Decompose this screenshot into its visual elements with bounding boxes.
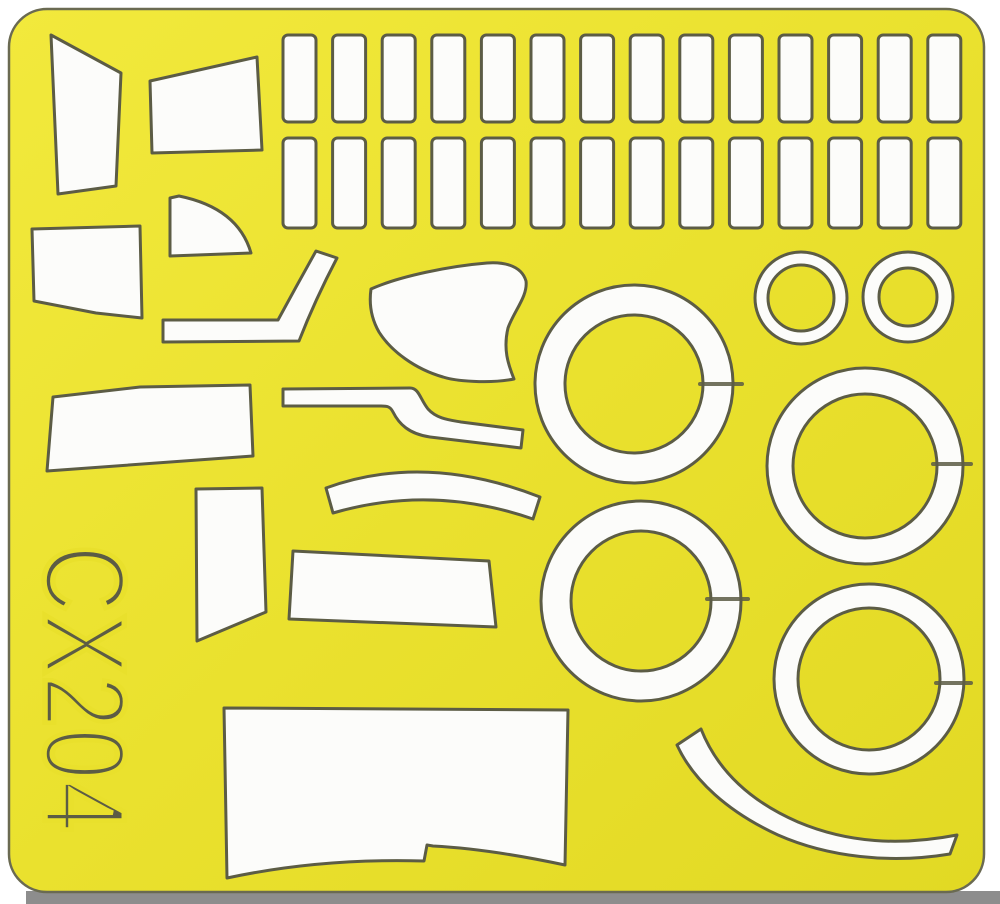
mask-rectangle [531,138,564,228]
mask-rectangle [829,138,862,228]
mask-rectangle [481,138,514,228]
mask-rectangle [729,138,762,228]
mask-rectangle [531,35,564,122]
mask-rectangle [630,138,663,228]
mask-rectangle [928,138,961,228]
mask-rectangle [283,138,316,228]
mask-canopy-base [224,708,568,878]
mask-rectangle [333,35,366,122]
mask-rectangle [779,138,812,228]
mask-rectangle [878,35,911,122]
mask-rectangle [432,35,465,122]
mask-rectangle [283,35,316,122]
mask-pentagon-left [32,226,142,318]
mask-rectangle [630,35,663,122]
mask-sheet-drawing: CX204 [0,0,1000,904]
mask-rectangle [382,138,415,228]
mask-rectangle [432,138,465,228]
mask-rectangle [928,35,961,122]
mask-rectangle [878,138,911,228]
mask-rectangle [829,35,862,122]
mask-rectangle [729,35,762,122]
mask-rectangle [333,138,366,228]
mask-trapezoid-mid [289,551,496,627]
mask-rectangle [779,35,812,122]
mask-rectangle [581,138,614,228]
mask-rectangle [581,35,614,122]
mask-rectangle [481,35,514,122]
mask-windscreen-strip [47,385,253,471]
mask-sheet-scan: CX204 [0,0,1000,904]
mask-rectangle [382,35,415,122]
mask-rectangle [680,138,713,228]
sheet-code-text: CX204 [20,545,148,833]
mask-rectangle [680,35,713,122]
